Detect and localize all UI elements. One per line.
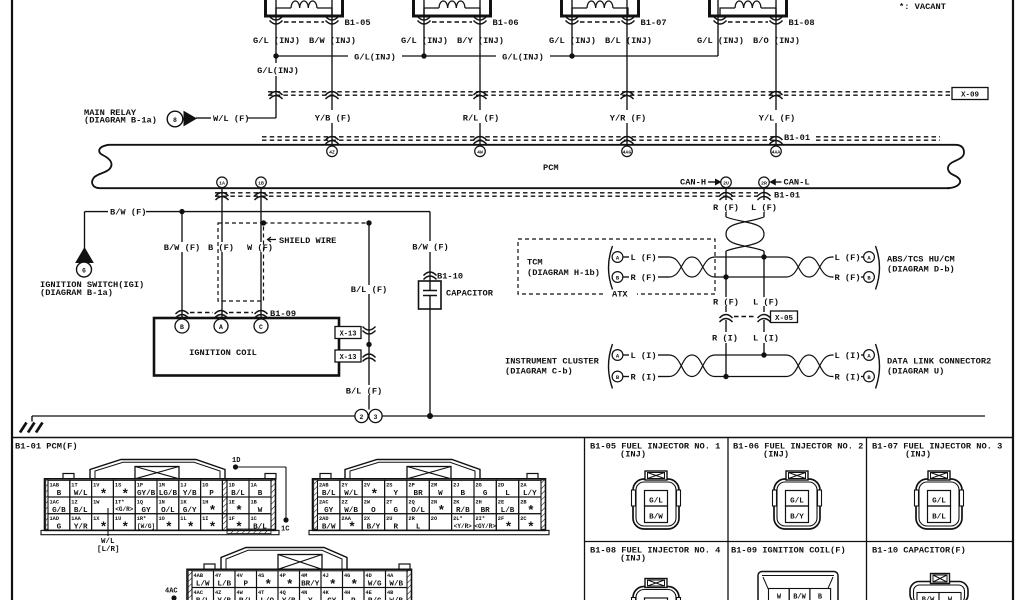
svg-text:(INJ): (INJ) xyxy=(763,450,789,460)
svg-text:C: C xyxy=(259,324,263,331)
svg-text:1U: 1U xyxy=(115,516,121,522)
svg-text:X-13: X-13 xyxy=(340,330,357,338)
svg-text:*: * xyxy=(527,520,535,535)
svg-text:G/L(INJ): G/L(INJ) xyxy=(354,53,396,63)
svg-text:*: * xyxy=(121,520,129,535)
svg-text:X-05: X-05 xyxy=(775,315,794,323)
svg-text:1W: 1W xyxy=(93,499,100,505)
svg-text:*: * xyxy=(350,577,358,592)
svg-text:*: * xyxy=(264,577,272,592)
svg-text:O: O xyxy=(371,507,376,515)
svg-text:B (F): B (F) xyxy=(208,243,234,253)
svg-text:2Y: 2Y xyxy=(341,483,348,489)
svg-text:2Z: 2Z xyxy=(341,499,347,505)
svg-text:(DIAGRAM U): (DIAGRAM U) xyxy=(887,367,944,377)
svg-text:G: G xyxy=(393,507,398,515)
svg-text:4N: 4N xyxy=(301,590,307,596)
svg-text:1H: 1H xyxy=(202,499,208,505)
svg-text:ABS/TCS HU/CM: ABS/TCS HU/CM xyxy=(887,255,955,265)
svg-text:*: VACANT: *: VACANT xyxy=(899,2,946,12)
svg-text:1D: 1D xyxy=(232,457,240,465)
svg-text:4V: 4V xyxy=(237,573,244,579)
svg-text:B/W (F): B/W (F) xyxy=(110,208,147,218)
svg-text:4AC: 4AC xyxy=(165,588,178,596)
svg-text:2U: 2U xyxy=(386,516,392,522)
svg-text:Y/R (F): Y/R (F) xyxy=(610,114,647,124)
svg-text:*: * xyxy=(348,520,356,535)
svg-text:B/L (F): B/L (F) xyxy=(346,387,383,397)
svg-text:1I: 1I xyxy=(202,516,208,522)
svg-text:*: * xyxy=(527,504,535,519)
svg-text:R (F): R (F) xyxy=(631,273,657,283)
svg-text:G/L: G/L xyxy=(649,498,663,506)
svg-text:2E: 2E xyxy=(498,499,504,505)
svg-text:X-09: X-09 xyxy=(961,92,980,100)
svg-text:1D: 1D xyxy=(229,483,235,489)
svg-text:(DIAGRAM D-b): (DIAGRAM D-b) xyxy=(887,265,955,275)
svg-text:1T: 1T xyxy=(71,483,78,489)
svg-text:4W: 4W xyxy=(477,150,483,156)
svg-text:1M: 1M xyxy=(159,483,165,489)
svg-text:(INJ): (INJ) xyxy=(620,554,646,564)
svg-text:1AB: 1AB xyxy=(50,483,60,489)
svg-text:(DIAGRAM B-1a): (DIAGRAM B-1a) xyxy=(84,116,157,126)
svg-text:B/W (F): B/W (F) xyxy=(412,243,449,253)
svg-text:R (F): R (F) xyxy=(835,273,861,283)
svg-text:2W: 2W xyxy=(364,499,371,505)
svg-text:(DIAGRAM B-1a): (DIAGRAM B-1a) xyxy=(40,288,113,298)
svg-text:2AB: 2AB xyxy=(319,483,329,489)
svg-text:1O: 1O xyxy=(159,516,165,522)
svg-text:1G: 1G xyxy=(202,483,208,489)
svg-text:1AC: 1AC xyxy=(50,499,60,505)
svg-text:R/B: R/B xyxy=(456,507,470,515)
svg-text:2R: 2R xyxy=(761,181,767,187)
svg-text:<Y/R>: <Y/R> xyxy=(454,523,472,530)
svg-text:*: * xyxy=(100,487,108,502)
svg-text:L/B: L/B xyxy=(217,581,231,589)
svg-text:1T*: 1T* xyxy=(115,499,125,505)
svg-text:2O: 2O xyxy=(431,516,437,522)
svg-text:[W/G]: [W/G] xyxy=(137,523,155,530)
svg-text:P: P xyxy=(209,490,214,498)
svg-text:L (F): L (F) xyxy=(835,253,861,263)
svg-text:G/L(INJ): G/L(INJ) xyxy=(502,53,544,63)
svg-text:B1-06: B1-06 xyxy=(493,18,519,28)
svg-text:(DIAGRAM C-b): (DIAGRAM C-b) xyxy=(505,367,573,377)
svg-text:L (I): L (I) xyxy=(631,351,657,361)
svg-text:2AC: 2AC xyxy=(319,499,329,505)
svg-text:DATA LINK CONNECTOR2: DATA LINK CONNECTOR2 xyxy=(887,357,991,367)
svg-text:L: L xyxy=(505,490,510,498)
svg-text:1C: 1C xyxy=(281,526,289,534)
svg-text:4B: 4B xyxy=(387,590,394,596)
svg-text:1A: 1A xyxy=(219,181,225,187)
svg-text:1E: 1E xyxy=(229,499,235,505)
svg-text:B1-01: B1-01 xyxy=(784,133,810,143)
svg-text:6: 6 xyxy=(82,267,86,274)
svg-text:4A: 4A xyxy=(387,573,394,579)
svg-text:B/L: B/L xyxy=(932,514,946,522)
svg-text:GY: GY xyxy=(142,507,152,515)
svg-text:*: * xyxy=(286,577,294,592)
svg-text:W/B: W/B xyxy=(344,507,358,515)
svg-text:O/L: O/L xyxy=(161,507,175,515)
svg-text:B/L: B/L xyxy=(322,490,336,498)
svg-text:4D: 4D xyxy=(366,573,372,579)
svg-text:*: * xyxy=(235,504,243,519)
svg-text:TCM: TCM xyxy=(527,258,543,268)
svg-text:P: P xyxy=(243,581,248,589)
svg-text:G/L(INJ): G/L(INJ) xyxy=(257,66,299,76)
svg-text:1F: 1F xyxy=(229,516,235,522)
svg-text:B/L (INJ): B/L (INJ) xyxy=(605,36,652,46)
svg-text:G/L (INJ): G/L (INJ) xyxy=(697,36,744,46)
svg-text:W (F): W (F) xyxy=(247,243,273,253)
svg-text:B/W: B/W xyxy=(793,594,806,600)
svg-text:W/L: W/L xyxy=(344,490,358,498)
svg-text:L (F): L (F) xyxy=(751,203,777,213)
svg-text:B: B xyxy=(461,490,466,498)
svg-text:O/L: O/L xyxy=(411,507,425,515)
svg-text:Y/R: Y/R xyxy=(74,524,88,532)
svg-text:[L/R]: [L/R] xyxy=(97,546,120,554)
svg-text:LG/B: LG/B xyxy=(159,490,178,498)
svg-text:*: * xyxy=(209,504,217,519)
svg-text:*: * xyxy=(187,520,195,535)
svg-text:2I*: 2I* xyxy=(476,516,486,522)
svg-text:2N: 2N xyxy=(431,499,437,505)
svg-text:G/Y: G/Y xyxy=(183,507,197,515)
svg-text:1A: 1A xyxy=(251,483,258,489)
svg-text:2X: 2X xyxy=(364,516,371,522)
svg-text:BR: BR xyxy=(481,507,491,515)
svg-text:R/L (F): R/L (F) xyxy=(463,114,500,124)
svg-text:SHIELD WIRE: SHIELD WIRE xyxy=(279,236,336,246)
svg-text:(INJ): (INJ) xyxy=(620,450,646,460)
svg-text:*: * xyxy=(438,504,446,519)
svg-text:1P: 1P xyxy=(137,483,143,489)
svg-text:A: A xyxy=(219,324,223,331)
svg-text:*: * xyxy=(209,520,217,535)
svg-text:B/Y: B/Y xyxy=(367,524,381,532)
svg-text:CAPACITOR: CAPACITOR xyxy=(446,289,494,299)
svg-text:L/B: L/B xyxy=(501,507,515,515)
svg-text:R (I): R (I) xyxy=(712,334,738,344)
svg-text:L (F): L (F) xyxy=(631,253,657,263)
svg-text:X-13: X-13 xyxy=(340,354,357,362)
svg-text:(INJ): (INJ) xyxy=(905,450,931,460)
svg-text:W/B: W/B xyxy=(389,581,403,589)
svg-text:*: * xyxy=(165,520,173,535)
svg-text:<GY/R>: <GY/R> xyxy=(474,523,496,530)
svg-text:2P: 2P xyxy=(408,483,414,489)
svg-text:1B: 1B xyxy=(251,499,258,505)
svg-text:1J: 1J xyxy=(180,483,186,489)
svg-text:B1-05: B1-05 xyxy=(345,18,371,28)
svg-text:2S: 2S xyxy=(386,483,393,489)
svg-text:B1-01 PCM(F): B1-01 PCM(F) xyxy=(15,442,78,452)
svg-text:4H: 4H xyxy=(344,590,350,596)
svg-text:B: B xyxy=(258,490,263,498)
svg-text:2U: 2U xyxy=(723,181,729,187)
svg-text:*: * xyxy=(329,577,337,592)
svg-text:B/W: B/W xyxy=(922,597,935,600)
svg-text:CAN-L: CAN-L xyxy=(784,178,810,188)
svg-text:BR: BR xyxy=(414,490,424,498)
svg-text:B/L: B/L xyxy=(231,490,245,498)
svg-text:B1-07: B1-07 xyxy=(641,18,667,28)
svg-text:(DIAGRAM H-1b): (DIAGRAM H-1b) xyxy=(527,268,600,278)
svg-text:1AA: 1AA xyxy=(71,516,81,522)
svg-text:2M: 2M xyxy=(431,483,437,489)
svg-text:W/L (F): W/L (F) xyxy=(213,114,250,124)
svg-text:G/B: G/B xyxy=(52,507,66,515)
svg-text:L (F): L (F) xyxy=(753,298,779,308)
svg-text:B1-09 IGNITION COIL(F): B1-09 IGNITION COIL(F) xyxy=(731,546,846,556)
svg-text:B/L (F): B/L (F) xyxy=(351,285,388,295)
svg-text:B: B xyxy=(57,490,62,498)
svg-text:B1-10: B1-10 xyxy=(437,272,463,282)
svg-text:Y/B (F): Y/B (F) xyxy=(315,114,352,124)
svg-text:1N: 1N xyxy=(159,499,165,505)
svg-text:BR/Y: BR/Y xyxy=(301,581,320,589)
svg-text:1L: 1L xyxy=(180,516,186,522)
svg-text:1C: 1C xyxy=(251,516,258,522)
svg-text:GY: GY xyxy=(324,507,334,515)
svg-text:4T: 4T xyxy=(258,590,265,596)
svg-text:2Q: 2Q xyxy=(408,499,415,505)
svg-text:B/W: B/W xyxy=(322,524,336,532)
svg-text:R (I): R (I) xyxy=(631,373,657,383)
svg-text:2G: 2G xyxy=(476,483,482,489)
svg-text:2T: 2T xyxy=(386,499,393,505)
svg-text:*: * xyxy=(100,520,108,535)
svg-text:ATX: ATX xyxy=(612,290,628,300)
svg-text:L (I): L (I) xyxy=(835,351,861,361)
svg-text:PCM: PCM xyxy=(543,163,559,173)
svg-text:4K: 4K xyxy=(323,590,330,596)
svg-text:Y/L (F): Y/L (F) xyxy=(759,114,796,124)
svg-text:4Y: 4Y xyxy=(215,573,222,579)
svg-text:3: 3 xyxy=(374,414,378,421)
svg-text:1R*: 1R* xyxy=(137,516,147,522)
svg-text:4AC: 4AC xyxy=(194,590,204,596)
svg-text:B1-07 FUEL INJECTOR NO. 3: B1-07 FUEL INJECTOR NO. 3 xyxy=(872,442,1002,452)
svg-text:1Z: 1Z xyxy=(71,499,77,505)
svg-text:G/L: G/L xyxy=(790,498,804,506)
svg-text:4AG: 4AG xyxy=(623,150,632,156)
svg-text:L: L xyxy=(416,524,421,532)
svg-text:2F: 2F xyxy=(498,516,504,522)
svg-text:G/L: G/L xyxy=(932,498,946,506)
svg-text:GY/B: GY/B xyxy=(137,490,156,498)
svg-text:1AD: 1AD xyxy=(50,516,60,522)
svg-text:G: G xyxy=(57,524,62,532)
svg-text:4E: 4E xyxy=(366,590,372,596)
svg-text:2AD: 2AD xyxy=(319,516,329,522)
svg-text:L/Y: L/Y xyxy=(523,490,537,498)
svg-text:2D: 2D xyxy=(498,483,504,489)
svg-text:<G/R>: <G/R> xyxy=(115,506,133,513)
svg-text:2L*: 2L* xyxy=(453,516,463,522)
svg-text:G: G xyxy=(483,490,488,498)
svg-text:*: * xyxy=(505,520,513,535)
svg-text:R: R xyxy=(393,524,398,532)
svg-text:B1-10 CAPACITOR(F): B1-10 CAPACITOR(F) xyxy=(872,546,966,556)
svg-text:1Q: 1Q xyxy=(137,499,144,505)
svg-text:2H: 2H xyxy=(476,499,482,505)
svg-text:W: W xyxy=(438,490,443,498)
svg-text:R (F): R (F) xyxy=(713,298,739,308)
svg-text:4Z: 4Z xyxy=(329,150,335,156)
svg-text:R (F): R (F) xyxy=(713,203,739,213)
svg-text:W/G: W/G xyxy=(368,581,382,589)
svg-text:B/L: B/L xyxy=(74,507,88,515)
svg-text:L (I): L (I) xyxy=(753,334,779,344)
svg-text:2K: 2K xyxy=(453,499,460,505)
svg-text:W/L: W/L xyxy=(74,490,88,498)
svg-text:2: 2 xyxy=(360,414,364,421)
svg-text:B1-08: B1-08 xyxy=(789,18,815,28)
svg-text:B: B xyxy=(180,324,184,331)
svg-text:IGNITION COIL: IGNITION COIL xyxy=(189,348,257,358)
svg-text:INSTRUMENT CLUSTER: INSTRUMENT CLUSTER xyxy=(505,357,600,367)
svg-text:8: 8 xyxy=(173,117,177,124)
svg-text:Y: Y xyxy=(393,490,398,498)
svg-text:B1-05 FUEL INJECTOR NO. 1: B1-05 FUEL INJECTOR NO. 1 xyxy=(590,442,720,452)
svg-text:4AA: 4AA xyxy=(772,150,781,156)
svg-text:1K: 1K xyxy=(180,499,187,505)
svg-text:4Z: 4Z xyxy=(215,590,221,596)
svg-text:Y/B: Y/B xyxy=(183,490,197,498)
svg-text:*: * xyxy=(370,487,378,502)
svg-text:B/Y: B/Y xyxy=(790,514,804,522)
svg-text:2J: 2J xyxy=(453,483,459,489)
svg-text:B1-06 FUEL INJECTOR NO. 2: B1-06 FUEL INJECTOR NO. 2 xyxy=(733,442,863,452)
svg-text:B1-01: B1-01 xyxy=(774,191,800,201)
svg-text:1B: 1B xyxy=(258,181,264,187)
svg-text:4M: 4M xyxy=(301,573,307,579)
svg-text:R (I): R (I) xyxy=(835,373,861,383)
svg-text:4Q: 4Q xyxy=(280,590,287,596)
svg-text:CAN-H: CAN-H xyxy=(680,178,706,188)
svg-text:L/W: L/W xyxy=(196,581,210,589)
svg-text:B/W: B/W xyxy=(649,514,663,522)
svg-text:W/L: W/L xyxy=(101,538,115,546)
svg-text:W: W xyxy=(258,507,263,515)
svg-text:4W: 4W xyxy=(237,590,244,596)
svg-text:2R: 2R xyxy=(408,516,415,522)
svg-text:B/W (F): B/W (F) xyxy=(164,243,201,253)
svg-text:B1-08 FUEL INJECTOR NO. 4: B1-08 FUEL INJECTOR NO. 4 xyxy=(590,546,720,556)
svg-text:2A: 2A xyxy=(520,483,527,489)
svg-text:4AB: 4AB xyxy=(194,573,204,579)
